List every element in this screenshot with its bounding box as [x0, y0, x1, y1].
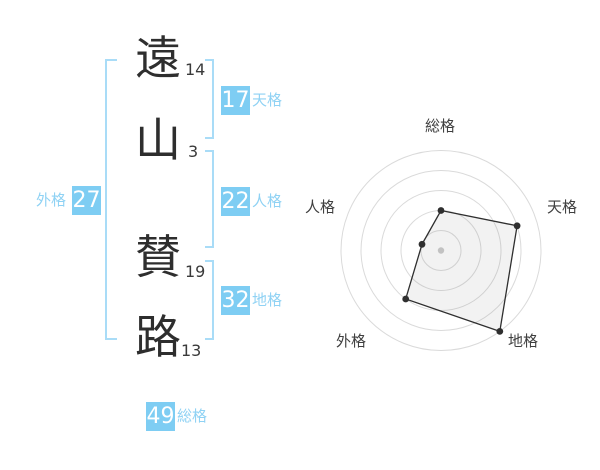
name-char-1: 遠: [128, 35, 188, 81]
radar-chart-svg: [300, 110, 592, 366]
chikaku-label: 地格: [252, 292, 282, 308]
chikaku-value-badge: 32: [221, 286, 250, 315]
tenkaku-bracket: [205, 59, 214, 139]
stroke-count-char-1: 14: [185, 62, 205, 78]
name-char-2: 山: [128, 117, 188, 163]
jinkaku-value-badge: 22: [221, 187, 250, 216]
radar-axis-label-tenkaku: 天格: [532, 199, 592, 215]
name-char-4: 路: [128, 314, 188, 360]
gaikaku-label: 外格: [36, 192, 66, 208]
chikaku-bracket: [205, 260, 214, 340]
radar-axis-label-gaikaku: 外格: [321, 333, 381, 349]
stroke-count-char-2: 3: [188, 144, 198, 160]
tenkaku-label: 天格: [252, 92, 282, 108]
name-fortune-stroke-chart: 遠 山 賛 路 14 3 19 13 17 天格 22 人格 32 地格 外格 …: [0, 0, 600, 470]
gaikaku-bracket: [105, 59, 117, 340]
radar-axis-label-chikaku: 地格: [493, 333, 553, 349]
radar-axis-label-soukaku: 総格: [410, 118, 470, 134]
soukaku-label: 総格: [177, 408, 207, 424]
name-char-3: 賛: [128, 234, 188, 280]
radar-axis-label-jinkaku: 人格: [290, 199, 350, 215]
gaikaku-value-badge: 27: [72, 186, 101, 215]
stroke-count-char-4: 13: [181, 343, 201, 359]
soukaku-value-badge: 49: [146, 402, 175, 431]
jinkaku-bracket: [205, 150, 214, 248]
jinkaku-label: 人格: [252, 193, 282, 209]
tenkaku-value-badge: 17: [221, 86, 250, 115]
stroke-count-char-3: 19: [185, 264, 205, 280]
